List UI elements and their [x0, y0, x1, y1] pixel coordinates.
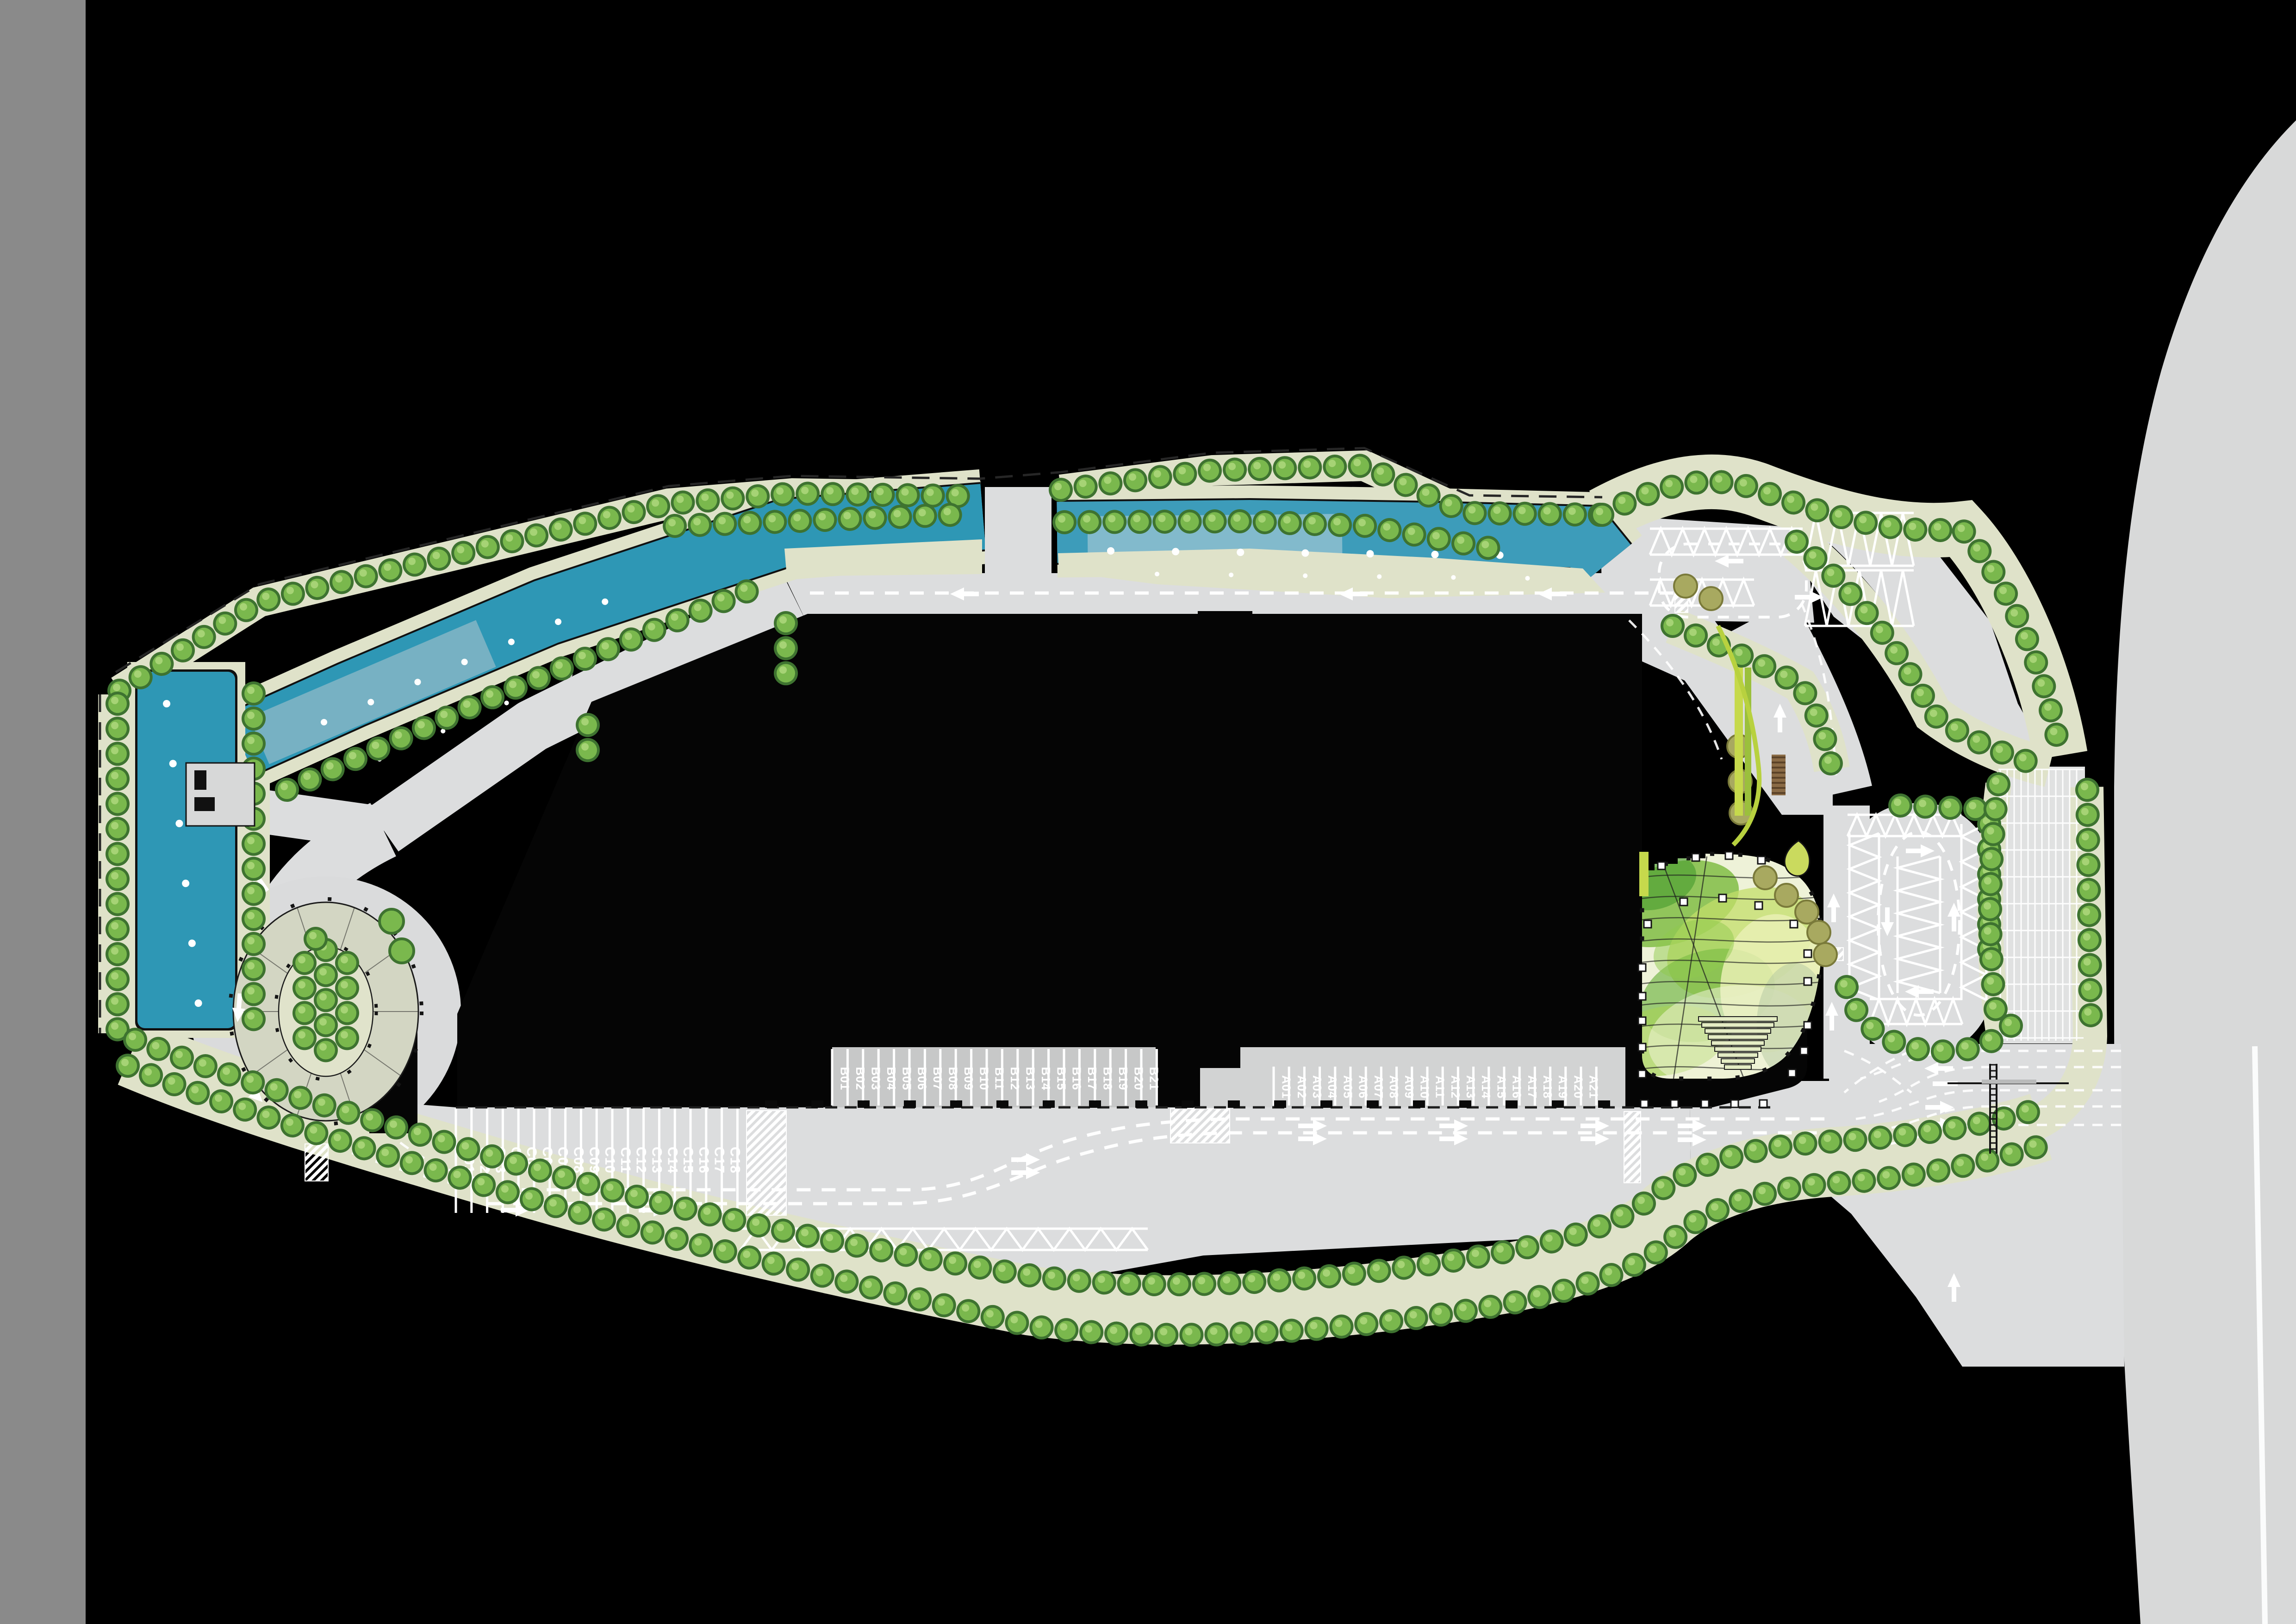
pergola-deck [1772, 755, 1786, 795]
left-frame-band [0, 0, 86, 1624]
amphitheater-step [1708, 1035, 1767, 1039]
bay-gate-tick [765, 1100, 777, 1108]
bay-label: B15 [1054, 1067, 1068, 1091]
bay-label: B04 [884, 1067, 898, 1091]
bay-label: A06 [1356, 1075, 1370, 1099]
bollard-marker-icon [1638, 1043, 1646, 1051]
bay-gate-tick [1320, 1100, 1332, 1108]
amphitheater-step [1705, 1029, 1771, 1033]
bay-label: A15 [1494, 1075, 1508, 1099]
bay-label: C18 [728, 1147, 743, 1174]
bollard-marker-icon [1644, 920, 1651, 928]
bay-gate-tick [1228, 1100, 1240, 1108]
bollard-marker-icon [1701, 1100, 1709, 1107]
bay-label: B21 [1147, 1067, 1161, 1091]
amphitheater-step [1699, 1017, 1777, 1021]
amphitheater-step [1715, 1047, 1761, 1051]
bay-label: C14 [665, 1147, 680, 1174]
bay-label: C10 [602, 1147, 617, 1174]
bay-label: B01 [838, 1067, 852, 1091]
bollard-marker-icon [1680, 898, 1687, 906]
bay-label: C15 [680, 1147, 696, 1174]
olive-tree-marker [1754, 866, 1777, 889]
bay-label: A07 [1372, 1075, 1386, 1099]
bay-label: C12 [634, 1147, 649, 1174]
bay-label: A02 [1295, 1075, 1309, 1099]
bay-label: A12 [1449, 1075, 1462, 1099]
bay-label: A08 [1387, 1075, 1401, 1099]
bollard-marker-icon [1800, 1047, 1808, 1055]
bay-gate-tick [1459, 1100, 1471, 1108]
amphitheater-step [1718, 1053, 1758, 1057]
bay-label: B08 [946, 1067, 960, 1091]
bay-label: B18 [1101, 1067, 1115, 1091]
bay-label: B13 [1024, 1067, 1038, 1091]
bay-label: C16 [696, 1147, 711, 1174]
bay-label: B02 [853, 1067, 867, 1091]
bay-label: A20 [1571, 1075, 1585, 1099]
bay-label: B19 [1116, 1067, 1130, 1091]
bay-label: A09 [1402, 1075, 1416, 1099]
bollard-marker-icon [1638, 993, 1646, 1000]
bay-gate-tick [1413, 1100, 1425, 1108]
amphitheater-step [1721, 1059, 1755, 1063]
bay-label: A03 [1310, 1075, 1324, 1099]
olive-tree-marker [1699, 587, 1723, 610]
bay-label: B10 [977, 1067, 991, 1091]
site-plan-canvas: A01A02A03A04A05A06A07A08A09A10A11A12A13A… [0, 0, 2296, 1624]
bay-gate-tick [1089, 1100, 1101, 1108]
bollard-marker-icon [1725, 852, 1733, 859]
bay-gate-tick [1182, 1100, 1194, 1108]
bay-label: A21 [1587, 1075, 1601, 1099]
site-plan-drawing: A01A02A03A04A05A06A07A08A09A10A11A12A13A… [0, 0, 2296, 1624]
bollard-marker-icon [1760, 1100, 1767, 1107]
bay-label: A14 [1479, 1075, 1493, 1099]
bay-gate-tick [811, 1100, 823, 1108]
bay-label: A13 [1464, 1075, 1478, 1099]
bay-gate-tick [1506, 1100, 1518, 1108]
bay-label: B07 [931, 1067, 945, 1091]
amphitheater-step [1702, 1023, 1774, 1027]
amphitheater-step [1711, 1041, 1764, 1045]
bay-label: A10 [1418, 1075, 1431, 1099]
bollard-marker-icon [1638, 1017, 1646, 1024]
olive-tree-marker [1775, 884, 1798, 907]
bay-gate-tick [904, 1100, 916, 1108]
bay-label: C13 [649, 1147, 665, 1174]
bay-label: B06 [915, 1067, 929, 1091]
bollard-marker-icon [1719, 894, 1726, 902]
bay-label: A18 [1541, 1075, 1555, 1099]
amphitheater-step [1724, 1065, 1751, 1069]
bollard-marker-icon [1638, 964, 1646, 971]
bay-label: B11 [993, 1067, 1007, 1090]
bollard-marker-icon [1804, 1022, 1811, 1029]
bay-label: A16 [1510, 1075, 1524, 1099]
bay-label: B14 [1039, 1067, 1053, 1091]
bay-label: A01 [1280, 1075, 1294, 1099]
olive-tree-marker [1807, 921, 1830, 944]
bay-gate-tick [1274, 1100, 1286, 1108]
bollard-marker-icon [1658, 862, 1665, 869]
bay-gate-tick [1367, 1100, 1379, 1108]
bay-label: C09 [586, 1147, 602, 1174]
bollard-marker-icon [1638, 1070, 1646, 1078]
bollard-marker-icon [1692, 854, 1699, 861]
bollard-marker-icon [1804, 978, 1811, 985]
bay-label: B16 [1070, 1067, 1084, 1091]
bay-label: B20 [1132, 1067, 1145, 1091]
bay-label: B17 [1085, 1067, 1099, 1091]
bay-gate-tick [950, 1100, 962, 1108]
bridge-deck [985, 487, 1052, 575]
bay-label: B09 [962, 1067, 976, 1091]
bollard-marker-icon [1755, 902, 1762, 909]
bollard-marker-icon [1641, 1100, 1648, 1107]
bollard-marker-icon [1788, 1069, 1796, 1077]
bay-gate-tick [858, 1100, 870, 1108]
bay-label: B03 [869, 1067, 883, 1091]
bay-label: C11 [618, 1147, 633, 1173]
olive-tree-marker [1795, 900, 1818, 924]
bay-gate-tick [1552, 1100, 1564, 1108]
olive-tree-marker [1814, 943, 1837, 966]
bay-label: B05 [900, 1067, 914, 1091]
pergola-deck [1772, 755, 1786, 795]
bay-label: A05 [1341, 1075, 1355, 1099]
bay-gate-tick [996, 1100, 1008, 1108]
bay-label: A17 [1525, 1075, 1539, 1099]
bay-label: A04 [1325, 1075, 1339, 1099]
bay-gate-tick [1043, 1100, 1055, 1108]
bollard-marker-icon [1758, 856, 1765, 864]
bollard-marker-icon [1790, 920, 1798, 928]
olive-tree-marker [1674, 575, 1697, 598]
bollard-marker-icon [1731, 1100, 1738, 1107]
bay-label: B12 [1008, 1067, 1022, 1091]
bay-gate-tick [1135, 1100, 1147, 1108]
bay-label: A19 [1556, 1075, 1570, 1099]
bollard-marker-icon [1671, 1100, 1678, 1107]
bay-label: C17 [712, 1147, 727, 1174]
bay-gate-tick [1598, 1100, 1610, 1108]
bollard-marker-icon [1804, 950, 1811, 957]
building-entry-tab [1198, 611, 1252, 626]
bay-label: A11 [1433, 1075, 1447, 1098]
west-lake [137, 672, 235, 1028]
